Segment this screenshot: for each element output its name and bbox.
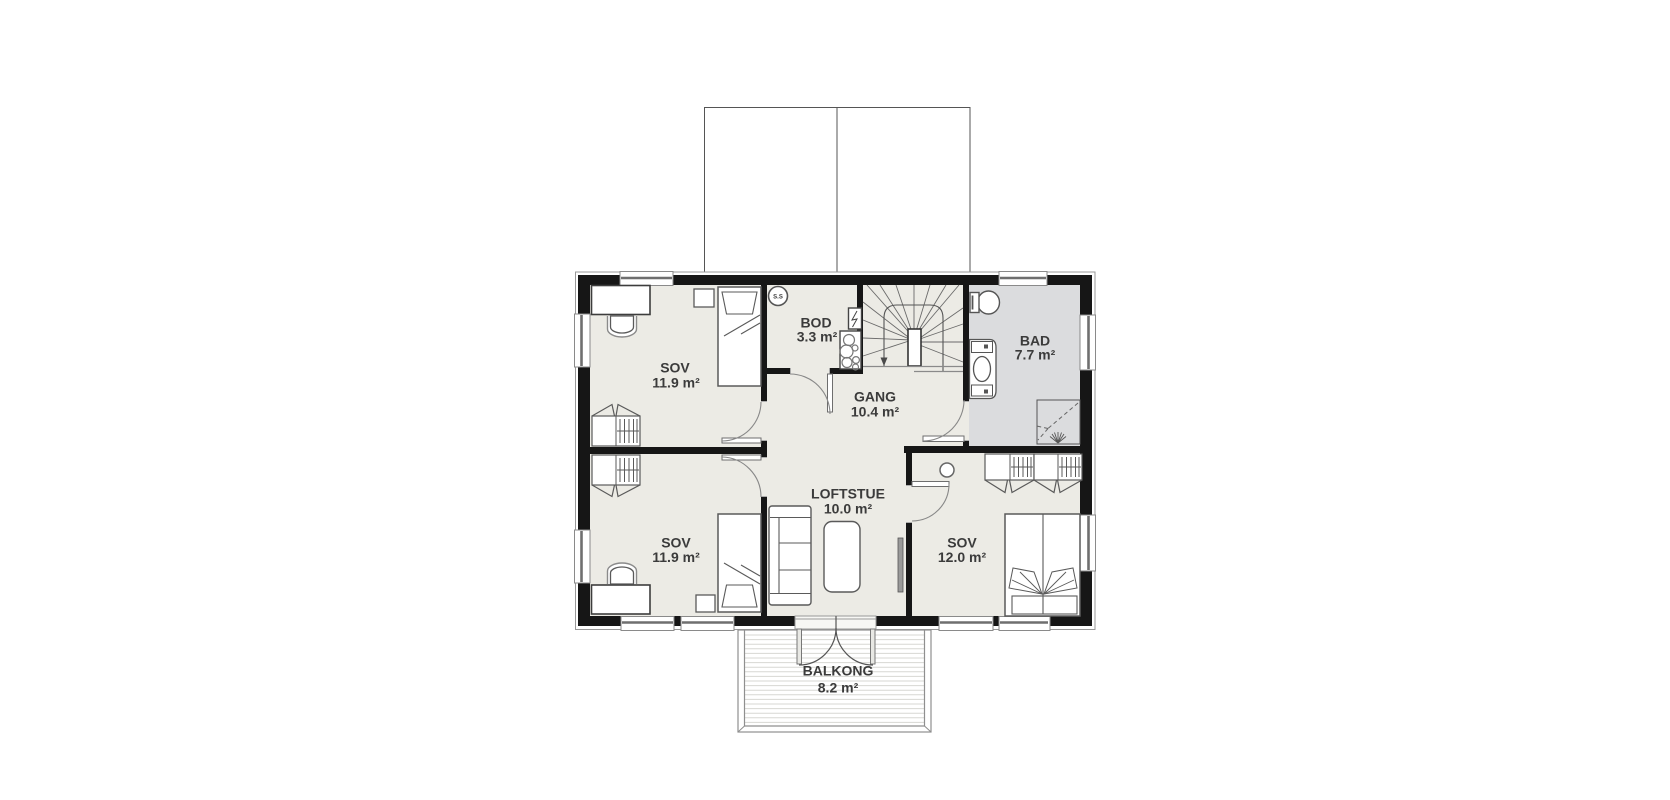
svg-text:7.7 m²: 7.7 m² [1015,347,1056,363]
svg-text:12.0 m²: 12.0 m² [938,549,987,565]
svg-text:BALKONG: BALKONG [803,663,874,679]
svg-text:10.0 m²: 10.0 m² [824,501,873,517]
svg-text:GANG: GANG [854,389,896,405]
svg-text:SOV: SOV [660,360,690,376]
svg-text:10.4 m²: 10.4 m² [851,404,900,420]
svg-text:8.2 m²: 8.2 m² [818,680,859,696]
svg-text:11.9 m²: 11.9 m² [652,549,700,565]
svg-text:LOFTSTUE: LOFTSTUE [811,486,885,502]
svg-text:11.9 m²: 11.9 m² [652,375,700,391]
svg-text:S.S: S.S [773,295,783,301]
svg-text:3.3 m²: 3.3 m² [797,329,838,345]
